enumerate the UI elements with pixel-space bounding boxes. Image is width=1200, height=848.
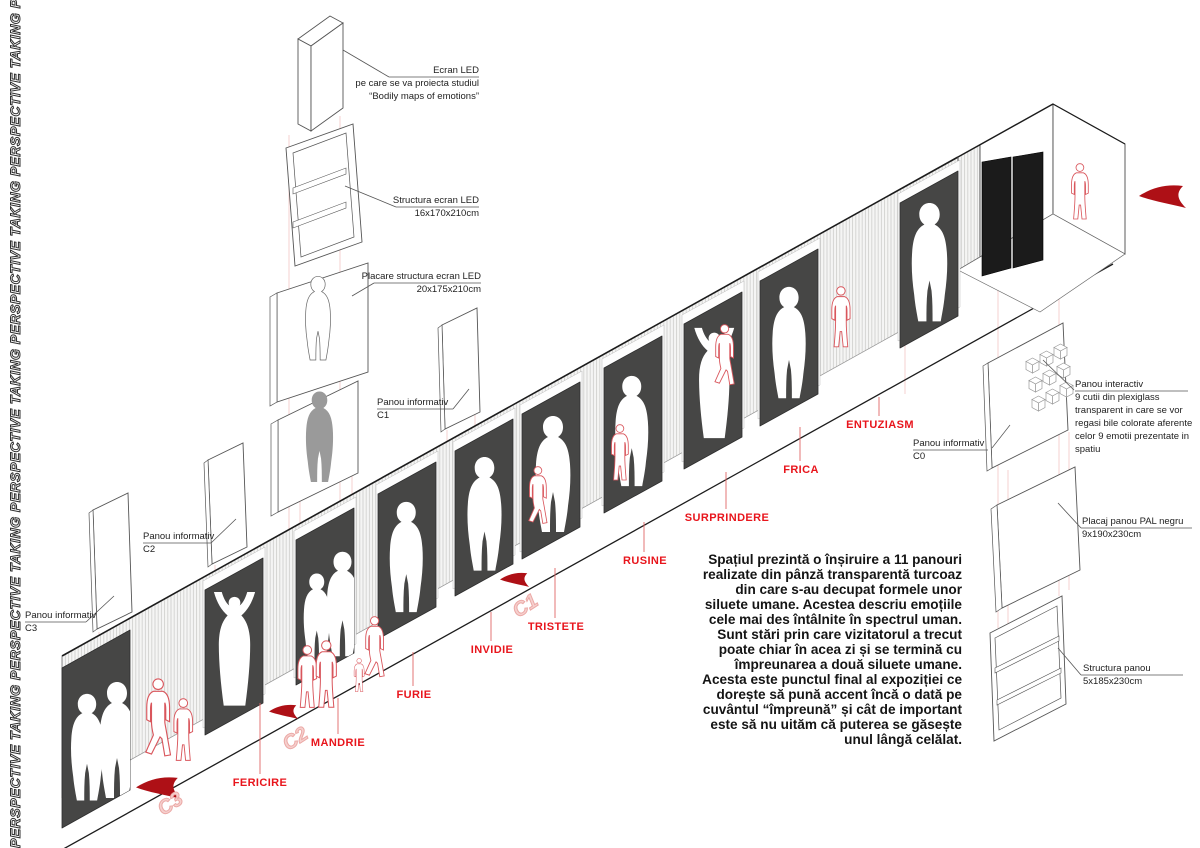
annotation-panou-interactiv: Panou interactiv 9 cutii din plexiglass …: [1075, 378, 1192, 456]
emotion-label-tristete: TRISTETE: [528, 621, 584, 633]
annotation-panou-c2: Panou informativ C2: [143, 530, 214, 556]
description-paragraph: Spațiul prezintă o înșiruire a 11 panour…: [652, 552, 962, 747]
annotation-panou-c1: Panou informativ C1: [377, 396, 448, 422]
emotion-label-furie: FURIE: [397, 689, 432, 701]
fabric-panel-sample: [271, 381, 358, 516]
annotation-placaj-pal: Placaj panou PAL negru 9x190x230cm: [1082, 515, 1183, 541]
emotion-label-fericire: FERICIRE: [233, 777, 288, 789]
side-vertical-title: PERSPECTIVE TAKING PERSPECTIVE TAKING PE…: [2, 0, 28, 848]
pal-black-panel: [991, 467, 1080, 612]
emotion-label-invidie: INVIDIE: [471, 644, 514, 656]
emotion-label-mandrie: MANDRIE: [311, 737, 365, 749]
panel-structure-frame: [990, 596, 1066, 741]
annotation-ecran-led: Ecran LED pe care se va proiecta studiul…: [355, 64, 479, 103]
arrow-entrance: [1139, 185, 1186, 208]
led-screen: [298, 16, 343, 131]
entrance-room: [958, 104, 1125, 312]
emotion-label-entuziasm: ENTUZIASM: [846, 419, 914, 431]
annotation-panou-c3: Panou informativ C3: [25, 609, 96, 635]
annotation-structura-ecran: Structura ecran LED 16x170x210cm: [393, 194, 479, 220]
led-screen-structure: [286, 124, 362, 266]
annotation-placare: Placare structura ecran LED 20x175x210cm: [362, 270, 481, 296]
diagram-artwork: [0, 0, 1200, 848]
annotation-structura-panou: Structura panou 5x185x230cm: [1083, 662, 1151, 688]
arrow-c1: [500, 573, 529, 587]
emotion-label-frica: FRICA: [783, 464, 819, 476]
info-panel-c0-interactive: [983, 323, 1073, 471]
emotion-label-surprindere: SURPRINDERE: [685, 512, 769, 524]
exhibition-axonometric-diagram: PERSPECTIVE TAKING PERSPECTIVE TAKING PE…: [0, 0, 1200, 848]
arrow-c2: [269, 705, 298, 719]
annotation-panou-c0: Panou informativ C0: [913, 437, 984, 463]
